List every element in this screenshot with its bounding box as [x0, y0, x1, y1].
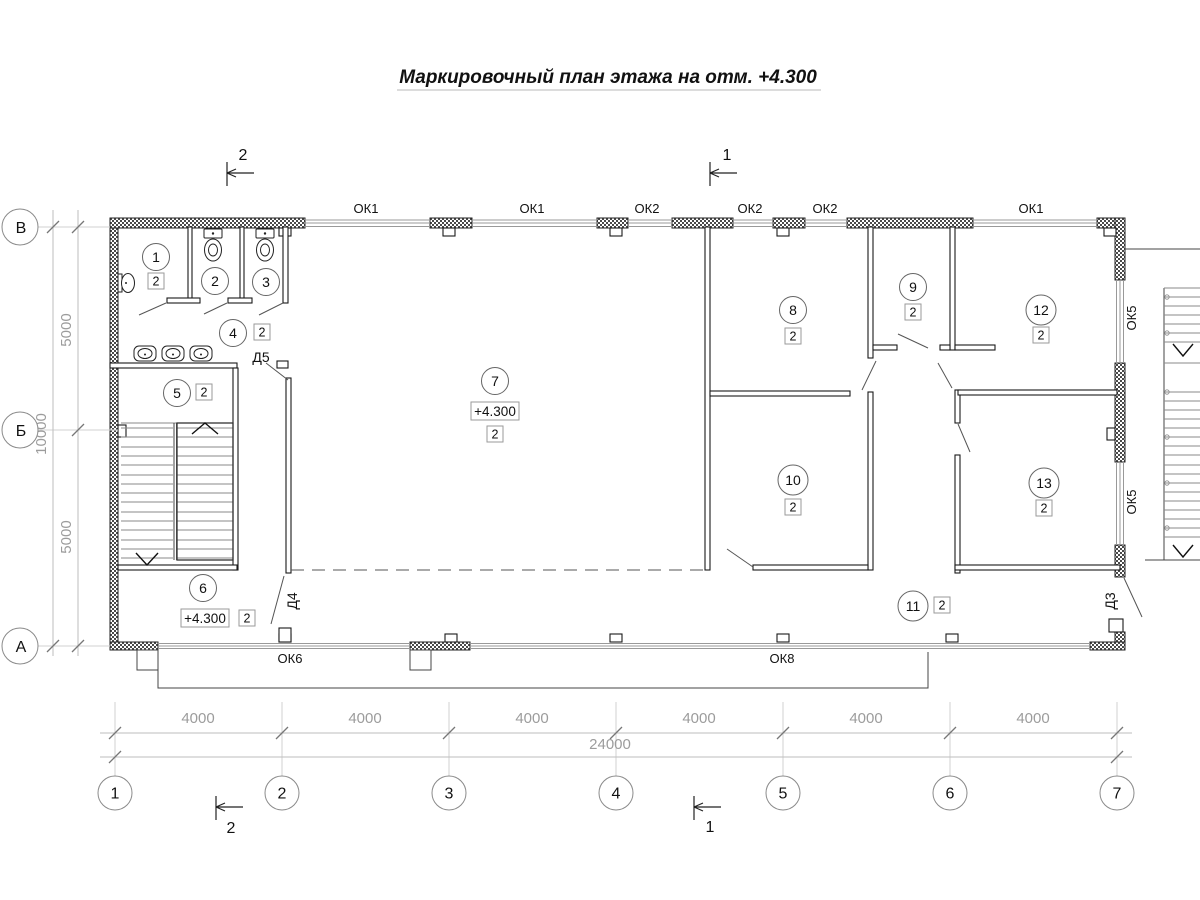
- svg-text:1: 1: [152, 249, 160, 265]
- fixtures: [118, 229, 274, 361]
- stair-down-arrow: [1173, 344, 1193, 356]
- dim-span: 5000: [58, 520, 75, 553]
- room-marker-10: 10 2: [778, 465, 808, 515]
- dim-span: 4000: [348, 710, 381, 727]
- window-label: ОК2: [813, 201, 838, 216]
- room-marker-1: 1 2: [143, 244, 170, 290]
- elevation-mark: +4.300: [184, 611, 226, 626]
- svg-text:2: 2: [239, 147, 248, 164]
- svg-text:11: 11: [906, 598, 921, 614]
- svg-text:1: 1: [706, 819, 715, 836]
- section-mark-2-top: 2: [227, 147, 254, 186]
- svg-text:2: 2: [211, 273, 219, 289]
- window-label: ОК1: [520, 201, 545, 216]
- door-label: Д3: [1102, 592, 1118, 609]
- dim-span: 4000: [682, 710, 715, 727]
- bottom-dimensions: 4000 4000 4000 4000 4000 4000 24000 1 2 …: [98, 702, 1134, 810]
- axis-bubble: 2: [278, 786, 287, 803]
- svg-text:2: 2: [790, 330, 797, 344]
- axis-bubble: 6: [946, 786, 955, 803]
- room-marker-8: 8 2: [780, 297, 807, 345]
- room-marker-11: 11 2: [898, 591, 950, 621]
- stair-down-arrow: [1173, 545, 1193, 557]
- svg-text:3: 3: [262, 274, 270, 290]
- axis-bubble: 7: [1113, 786, 1122, 803]
- room-marker-5: 5 2: [164, 380, 213, 407]
- svg-text:10: 10: [785, 472, 801, 488]
- svg-text:5: 5: [173, 385, 181, 401]
- svg-text:2: 2: [492, 428, 499, 442]
- window-label: ОК1: [354, 201, 379, 216]
- room-marker-4: 4 2: [220, 320, 271, 347]
- svg-text:2: 2: [227, 820, 236, 837]
- svg-text:2: 2: [153, 275, 160, 289]
- axis-bubble: 3: [445, 786, 454, 803]
- svg-text:1: 1: [723, 147, 732, 164]
- window-label: ОК5: [1124, 490, 1139, 515]
- svg-text:2: 2: [244, 612, 251, 626]
- svg-text:2: 2: [790, 501, 797, 515]
- axis-bubble: 1: [111, 786, 120, 803]
- axis-bubble: Б: [16, 423, 27, 440]
- svg-text:6: 6: [199, 580, 207, 596]
- drawing-sheet: Маркировочный план этажа на отм. +4.300: [0, 0, 1200, 900]
- dim-span: 4000: [181, 710, 214, 727]
- drawing-title: Маркировочный план этажа на отм. +4.300: [399, 67, 817, 88]
- svg-text:13: 13: [1036, 475, 1052, 491]
- elevation-mark: +4.300: [474, 404, 516, 419]
- svg-text:2: 2: [259, 326, 266, 340]
- dim-span: 4000: [1016, 710, 1049, 727]
- dim-span: 4000: [515, 710, 548, 727]
- window-label: ОК5: [1124, 306, 1139, 331]
- stair-down-arrow: [136, 553, 158, 565]
- axis-bubble: А: [16, 639, 27, 656]
- window-label: ОК6: [278, 651, 303, 666]
- dim-span: 5000: [58, 313, 75, 346]
- window-label: ОК1: [1019, 201, 1044, 216]
- window-label: ОК2: [738, 201, 763, 216]
- room-markers: 1 2 2 3 4 2 5 2 6 +4.300 2 7 +4.300 2 8 …: [143, 244, 1060, 628]
- window-label: ОК8: [770, 651, 795, 666]
- sink-icon: [190, 346, 212, 361]
- svg-text:12: 12: [1033, 302, 1049, 318]
- left-dimensions: 5000 5000 10000 В Б А: [2, 209, 118, 664]
- section-mark-1-bottom: 1: [694, 796, 721, 836]
- svg-text:2: 2: [939, 599, 946, 613]
- svg-text:7: 7: [491, 373, 499, 389]
- stair-up-arrow: [192, 423, 218, 434]
- toilet-icon: [256, 229, 274, 261]
- floor-plan-drawing: Маркировочный план этажа на отм. +4.300: [0, 0, 1200, 900]
- svg-text:9: 9: [909, 279, 917, 295]
- room-marker-6: 6 +4.300 2: [181, 575, 255, 628]
- room-marker-7: 7 +4.300 2: [471, 368, 519, 443]
- room-marker-12: 12 2: [1026, 295, 1056, 343]
- window-label: ОК2: [635, 201, 660, 216]
- sink-icon: [162, 346, 184, 361]
- dim-total: 24000: [589, 736, 631, 753]
- toilet-icon: [204, 229, 222, 261]
- sink-icon: [134, 346, 156, 361]
- section-mark-2-bottom: 2: [216, 796, 243, 837]
- svg-text:2: 2: [1041, 502, 1048, 516]
- room-marker-9: 9 2: [900, 274, 927, 321]
- svg-text:2: 2: [1038, 329, 1045, 343]
- room-marker-2: 2: [202, 268, 229, 295]
- room-marker-13: 13 2: [1029, 468, 1059, 516]
- door-label: Д5: [252, 349, 269, 365]
- section-mark-1-top: 1: [710, 147, 737, 186]
- svg-text:8: 8: [789, 302, 797, 318]
- room-marker-3: 3: [253, 269, 280, 296]
- door-label: Д4: [284, 592, 300, 609]
- svg-text:2: 2: [910, 306, 917, 320]
- axis-bubble: 5: [779, 786, 788, 803]
- svg-text:2: 2: [201, 386, 208, 400]
- svg-text:4: 4: [229, 325, 237, 341]
- axis-bubble: В: [16, 220, 27, 237]
- dim-span: 4000: [849, 710, 882, 727]
- axis-bubble: 4: [612, 786, 621, 803]
- internal-stair: [121, 423, 233, 565]
- entrance-porch: [137, 650, 928, 688]
